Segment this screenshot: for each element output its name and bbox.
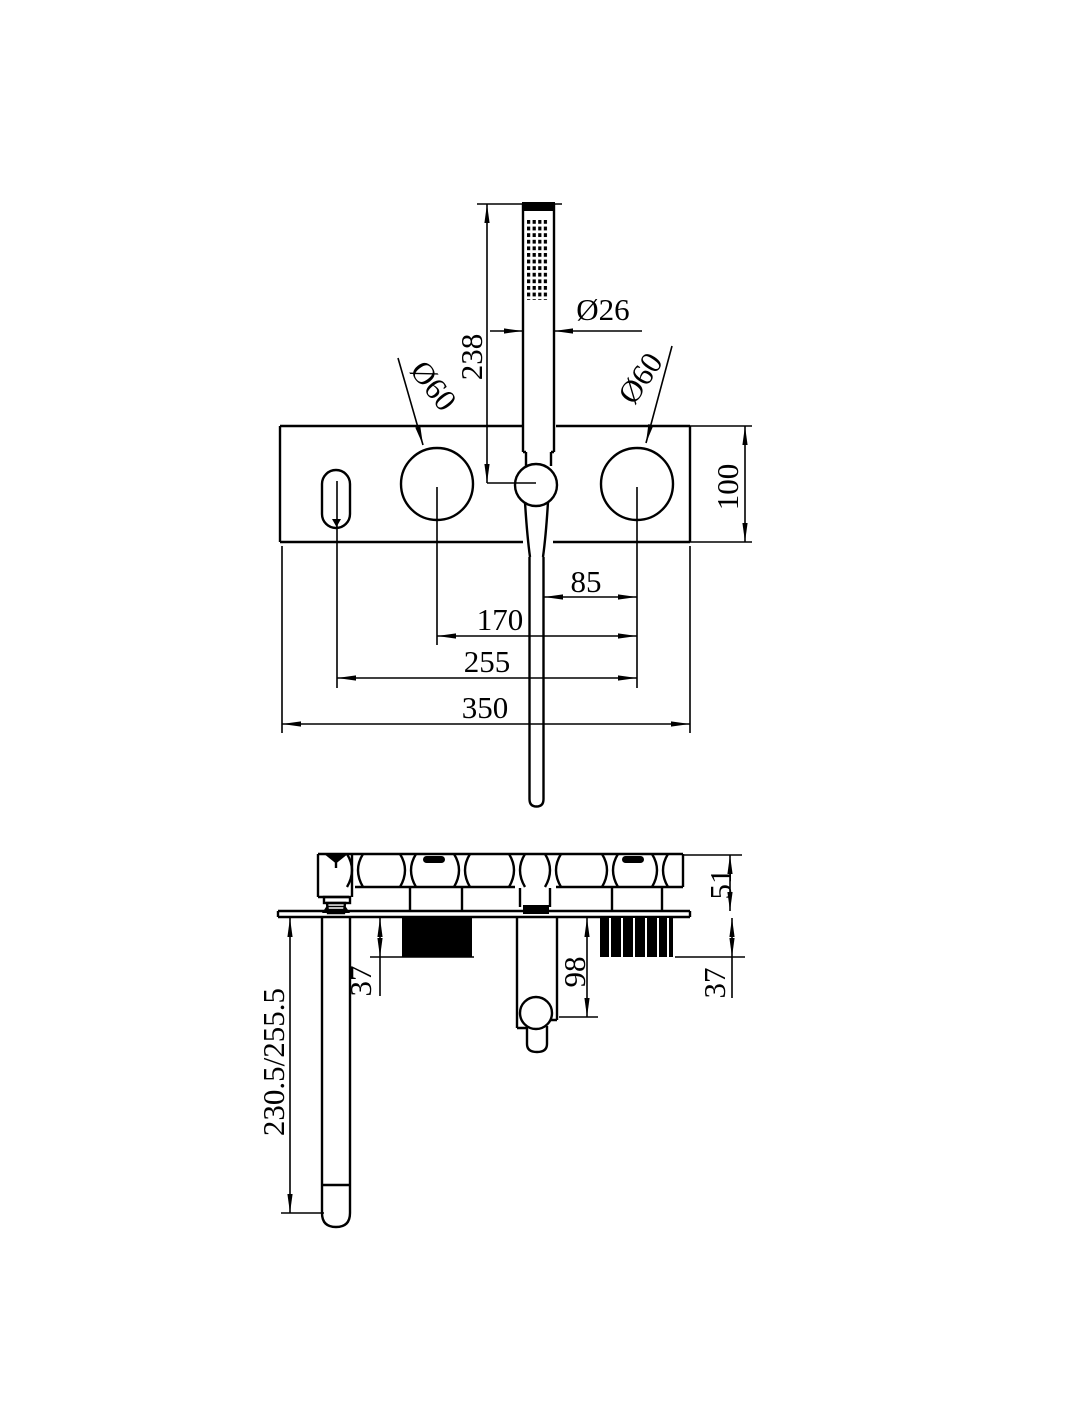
knob1-notch <box>423 856 445 863</box>
dim-body-projection: 51 <box>703 869 738 900</box>
technical-drawing: 238 Ø26 Ø60 Ø60 100 85 170 255 350 <box>0 0 1088 1408</box>
dim-right-valve-depth: 37 <box>697 968 732 999</box>
spout-tube <box>322 917 350 1227</box>
hose-holder-circle <box>515 464 557 506</box>
drawing-canvas: 238 Ø26 Ø60 Ø60 100 85 170 255 350 <box>0 0 1088 1408</box>
dim-85: 85 <box>571 564 602 599</box>
dim-left-valve-depth: 37 <box>343 966 378 997</box>
center-lines-front <box>282 204 752 733</box>
dim-350: 350 <box>462 690 509 725</box>
hose-elbow <box>520 997 552 1029</box>
dimensions-front: 238 Ø26 Ø60 Ø60 100 85 170 255 350 <box>282 204 745 725</box>
left-cartridge <box>402 918 472 957</box>
holder-pad <box>523 905 549 914</box>
body-waists <box>347 854 668 887</box>
dim-plate-height: 100 <box>710 464 745 511</box>
front-view <box>280 202 752 807</box>
dim-right-handle-diameter: Ø60 <box>611 346 670 410</box>
dim-255: 255 <box>464 644 511 679</box>
dim-spout-reach: 230.5/255.5 <box>256 988 291 1136</box>
dim-hose-drop: 98 <box>557 957 592 988</box>
spray-face <box>527 218 549 300</box>
dim-170: 170 <box>477 602 524 637</box>
hose <box>525 502 548 807</box>
side-view <box>278 854 745 1227</box>
dim-handshower-length: 238 <box>454 334 489 381</box>
dim-handshower-diameter: Ø26 <box>576 292 629 327</box>
mounting-plate <box>280 426 690 542</box>
knob2-notch <box>622 856 644 863</box>
spout-thread-lines <box>327 907 345 910</box>
